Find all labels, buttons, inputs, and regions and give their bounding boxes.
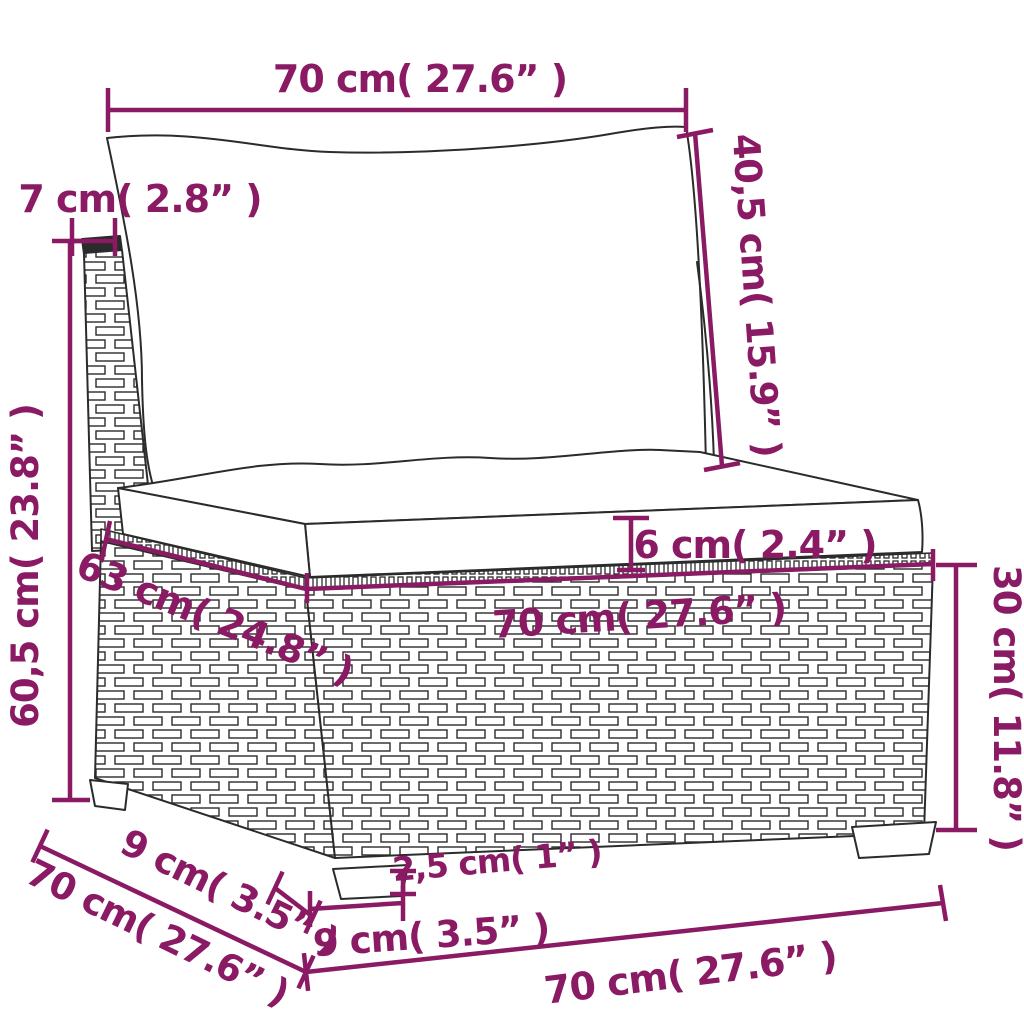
foot-front-right — [852, 822, 936, 858]
dim-label-back-cushion-width: 70 cm( 27.6” ) — [273, 57, 567, 101]
dimension-diagram: 70 cm( 27.6” ) 40,5 cm( 15.9” ) 7 cm( 2.… — [0, 0, 1024, 1024]
foot-back-left — [90, 780, 128, 810]
dim-label-back-cushion-height: 40,5 cm( 15.9” ) — [724, 132, 789, 458]
dim-label-base-width: 70 cm( 27.6” ) — [542, 933, 839, 1013]
dim-label-back-panel-thickness: 7 cm( 2.8” ) — [18, 177, 261, 221]
dim-label-total-height: 60,5 cm( 23.8” ) — [4, 404, 47, 728]
dim-line-total-height — [52, 241, 90, 800]
dim-line-base-height — [936, 565, 977, 830]
dim-label-seat-cushion-thickness: 6 cm( 2.4” ) — [633, 523, 876, 567]
dim-label-base-height: 30 cm( 11.8” ) — [985, 565, 1024, 851]
dim-label-foot-width: 9 cm( 3.5” ) — [312, 906, 551, 965]
diagram-canvas: 70 cm( 27.6” ) 40,5 cm( 15.9” ) 7 cm( 2.… — [0, 0, 1024, 1024]
sofa-drawing — [82, 127, 936, 899]
